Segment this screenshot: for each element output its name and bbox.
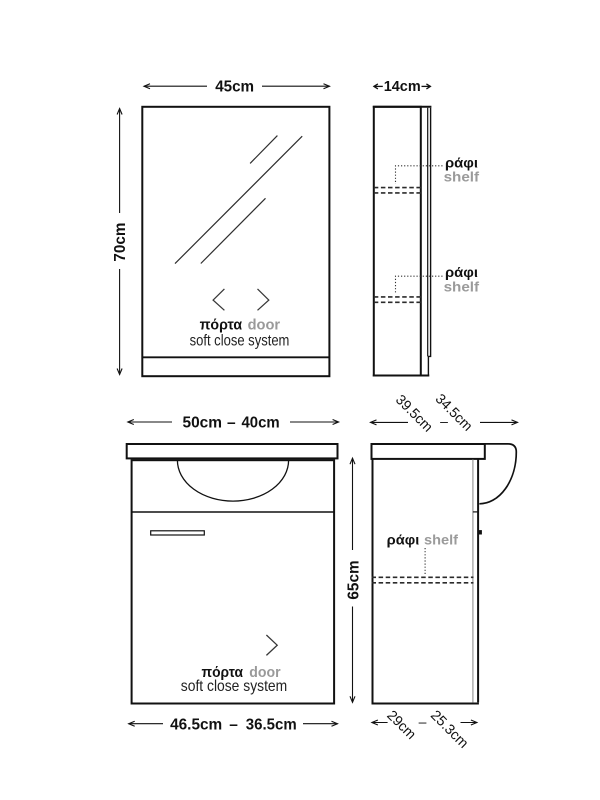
svg-text:soft close system: soft close system <box>181 678 287 695</box>
svg-text:shelf: shelf <box>444 279 480 295</box>
svg-text:πόρταdoor: πόρταdoor <box>200 316 281 333</box>
svg-text:14cm: 14cm <box>384 78 421 95</box>
svg-text:–: – <box>419 714 427 730</box>
svg-text:shelf: shelf <box>444 169 480 185</box>
svg-text:50cm–40cm: 50cm–40cm <box>183 415 280 432</box>
svg-text:soft close system: soft close system <box>190 332 290 349</box>
svg-text:65cm: 65cm <box>346 560 363 599</box>
svg-text:45cm: 45cm <box>215 78 254 95</box>
svg-text:46.5cm–36.5cm: 46.5cm–36.5cm <box>170 717 297 734</box>
svg-text:70cm: 70cm <box>112 223 129 262</box>
